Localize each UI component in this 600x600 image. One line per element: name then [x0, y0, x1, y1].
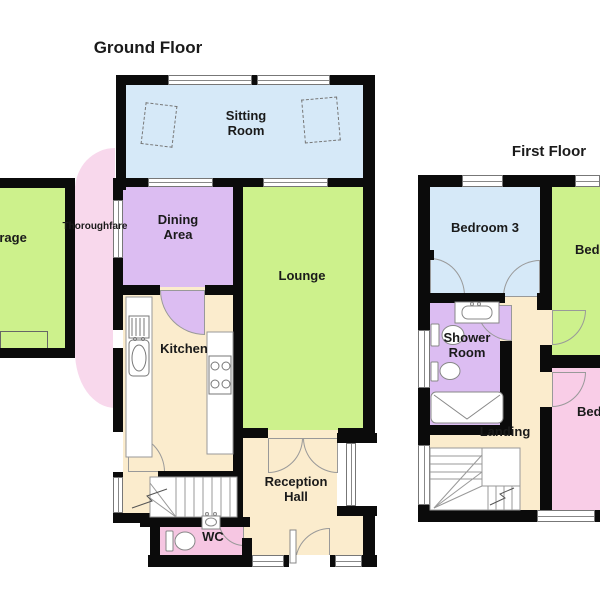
window-recess — [337, 443, 377, 506]
wall-segment — [500, 341, 512, 430]
wall-segment — [337, 506, 377, 516]
wall-segment — [338, 428, 363, 438]
reception-hall-label: Reception Hall — [251, 474, 341, 505]
wall-segment — [540, 355, 600, 368]
wall-segment — [0, 178, 75, 188]
first-floor-title: First Floor — [512, 143, 586, 161]
wall-segment — [363, 75, 375, 433]
dining-area-label: Dining Area — [149, 212, 207, 243]
wall-segment — [205, 285, 243, 295]
window — [335, 555, 362, 567]
wall-segment — [0, 348, 75, 358]
rooflight-icon — [301, 97, 341, 144]
window — [418, 445, 430, 505]
landing-label: Landing — [480, 424, 531, 439]
wall-segment — [540, 407, 552, 510]
shower-room-label: Shower Room — [437, 330, 497, 361]
thoroughfare-label: Thoroughfare — [63, 221, 128, 233]
sitting-room-label: Sitting Room — [216, 108, 276, 139]
opening — [148, 178, 213, 187]
window — [252, 555, 284, 567]
lounge-fill — [243, 187, 363, 430]
window — [418, 330, 430, 388]
ground-floor-title: Ground Floor — [94, 38, 203, 58]
wall-segment — [462, 293, 474, 318]
front-door-opening — [289, 555, 330, 567]
window — [346, 443, 356, 506]
garage-bench — [0, 331, 48, 349]
thoroughfare-bottom-curve — [75, 352, 115, 408]
window — [257, 75, 330, 85]
floorplan-page: { "ground_floor": { "title": "Ground Flo… — [0, 0, 600, 600]
wall-segment — [158, 471, 237, 480]
door-opening — [113, 330, 123, 348]
window — [575, 175, 600, 187]
wall-segment — [116, 75, 126, 190]
wall-segment — [424, 250, 434, 260]
wall-segment — [418, 175, 600, 187]
bedroom3-label: Bedroom 3 — [451, 220, 519, 235]
window — [113, 477, 123, 513]
bedroom-right-top-label: Bedroom — [575, 242, 600, 257]
wc-label: WC — [202, 529, 224, 544]
thoroughfare-fill — [75, 186, 115, 354]
window — [462, 175, 503, 187]
thoroughfare-top-curve — [75, 148, 115, 190]
bedroom-right-bottom-label: Bedroom — [577, 404, 600, 419]
lounge-label: Lounge — [279, 268, 326, 283]
wall-segment — [113, 513, 168, 523]
kitchen-label: Kitchen — [160, 341, 208, 356]
wall-segment — [233, 428, 268, 438]
window — [537, 510, 595, 522]
wall-segment — [540, 187, 552, 310]
opening — [263, 178, 328, 187]
window — [168, 75, 252, 85]
garage-label: Garage — [0, 230, 27, 245]
rooflight-icon — [141, 102, 178, 148]
wall-segment — [65, 178, 75, 358]
garage-fill — [0, 188, 65, 348]
door-opening — [113, 432, 123, 472]
